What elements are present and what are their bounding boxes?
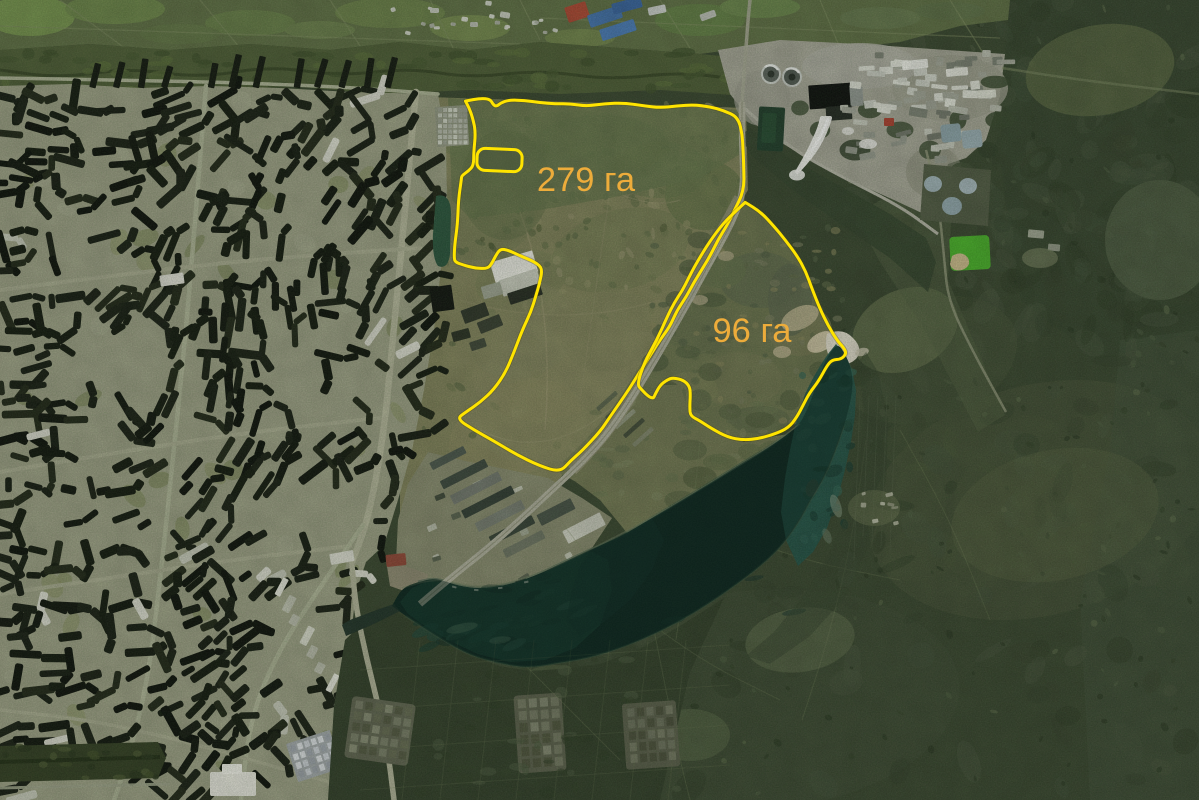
svg-text:96 га: 96 га — [713, 312, 793, 350]
svg-text:279 га: 279 га — [537, 161, 636, 199]
